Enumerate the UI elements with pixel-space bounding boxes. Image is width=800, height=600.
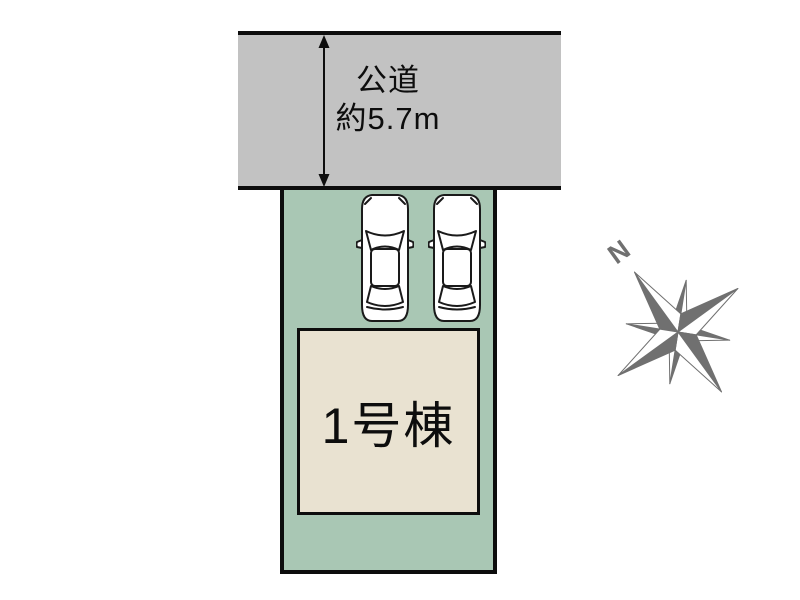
building-label: 1号棟 <box>322 386 456 458</box>
site-plan-diagram: 公道 約5.7m 1号棟 <box>0 0 800 600</box>
car-icon <box>356 193 414 323</box>
road-label-line1: 公道 <box>308 62 468 100</box>
building-1-footprint: 1号棟 <box>297 328 480 515</box>
compass-north-label: N <box>602 235 635 270</box>
compass-rose-icon: N <box>598 235 763 410</box>
road-label: 公道 約5.7m <box>308 62 468 138</box>
car-icon <box>428 193 486 323</box>
road-label-line2: 約5.7m <box>308 100 468 138</box>
